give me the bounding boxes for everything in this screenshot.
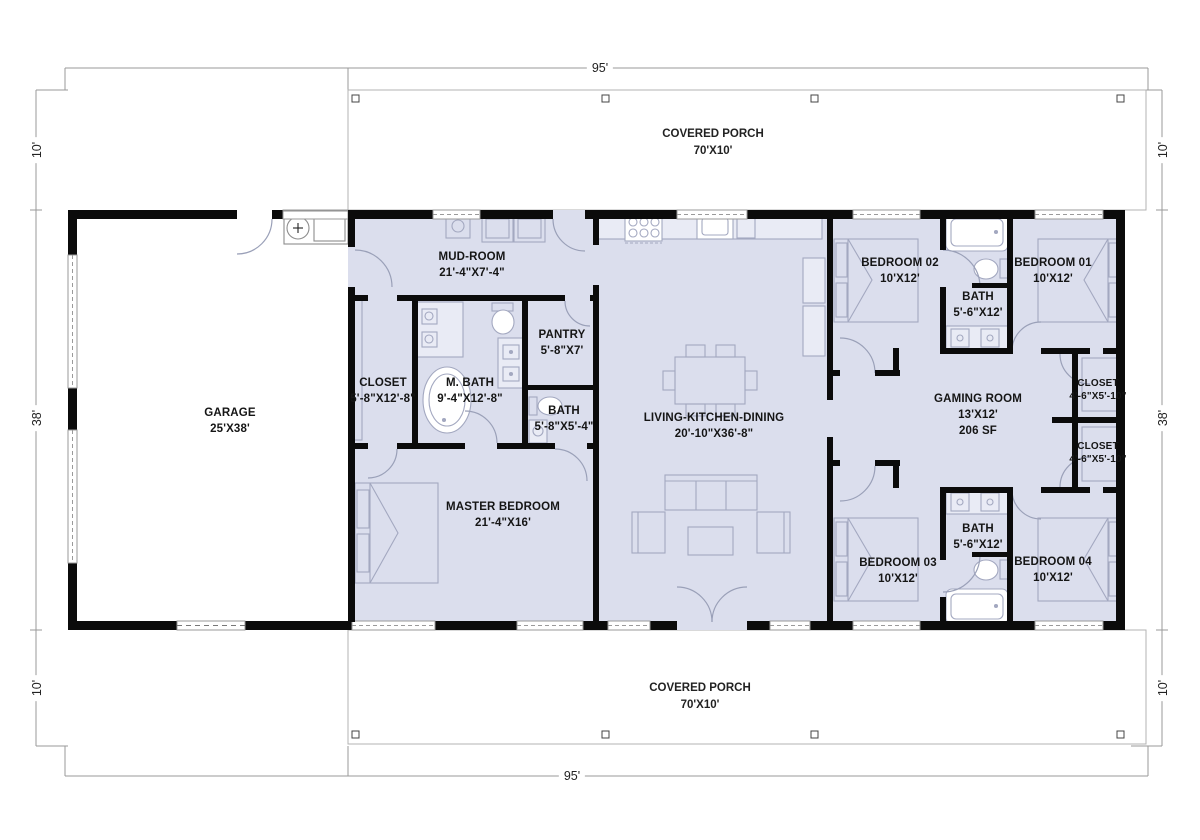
room-label-master-closet: CLOSET5'-8"X12'-8": [350, 376, 415, 408]
porch-label-top: COVERED PORCH70'X10': [662, 126, 764, 159]
room-label-garage: GARAGE25'X38': [204, 406, 255, 438]
room-label-master-bath: M. BATH9'-4"X12'-8": [437, 376, 502, 408]
dim-left-bottom: 10': [30, 675, 44, 701]
room-label-bedroom-01: BEDROOM 0110'X12': [1014, 256, 1092, 288]
room-label-bath-top: BATH5'-6"X12': [953, 290, 1002, 322]
room-label-living-kitchen-dining: LIVING-KITCHEN-DINING20'-10"X36'-8": [644, 411, 785, 443]
room-label-gaming-room: GAMING ROOM13'X12'206 SF: [934, 392, 1022, 440]
room-label-bedroom-02: BEDROOM 0210'X12': [861, 256, 939, 288]
room-label-powder-bath: BATH5'-8"X5'-4": [535, 404, 594, 436]
room-label-bedroom-03: BEDROOM 0310'X12': [859, 556, 937, 588]
floor-plan-canvas: 95' 95' 10' 38' 10' 10' 38' 10' COVERED …: [0, 0, 1200, 840]
dim-top: 95': [587, 61, 613, 75]
room-label-closet-a: CLOSET4'-6"X5'-10": [1069, 377, 1126, 403]
dim-left-top: 10': [30, 137, 44, 163]
room-label-master-bedroom: MASTER BEDROOM21'-4"X16': [446, 500, 560, 532]
dim-right-bottom: 10': [1156, 675, 1170, 701]
dim-bottom: 95': [559, 769, 585, 783]
dim-right-top: 10': [1156, 137, 1170, 163]
dim-left-mid: 38': [30, 405, 44, 431]
room-label-bedroom-04: BEDROOM 0410'X12': [1014, 555, 1092, 587]
porch-label-bottom: COVERED PORCH70'X10': [649, 680, 751, 713]
dim-right-mid: 38': [1156, 405, 1170, 431]
room-label-mud-room: MUD-ROOM21'-4"X7'-4": [439, 250, 506, 282]
room-label-pantry: PANTRY5'-8"X7': [539, 328, 586, 360]
room-label-closet-b: CLOSET4'-6"X5'-10": [1069, 440, 1126, 466]
room-label-bath-bottom: BATH5'-6"X12': [953, 522, 1002, 554]
